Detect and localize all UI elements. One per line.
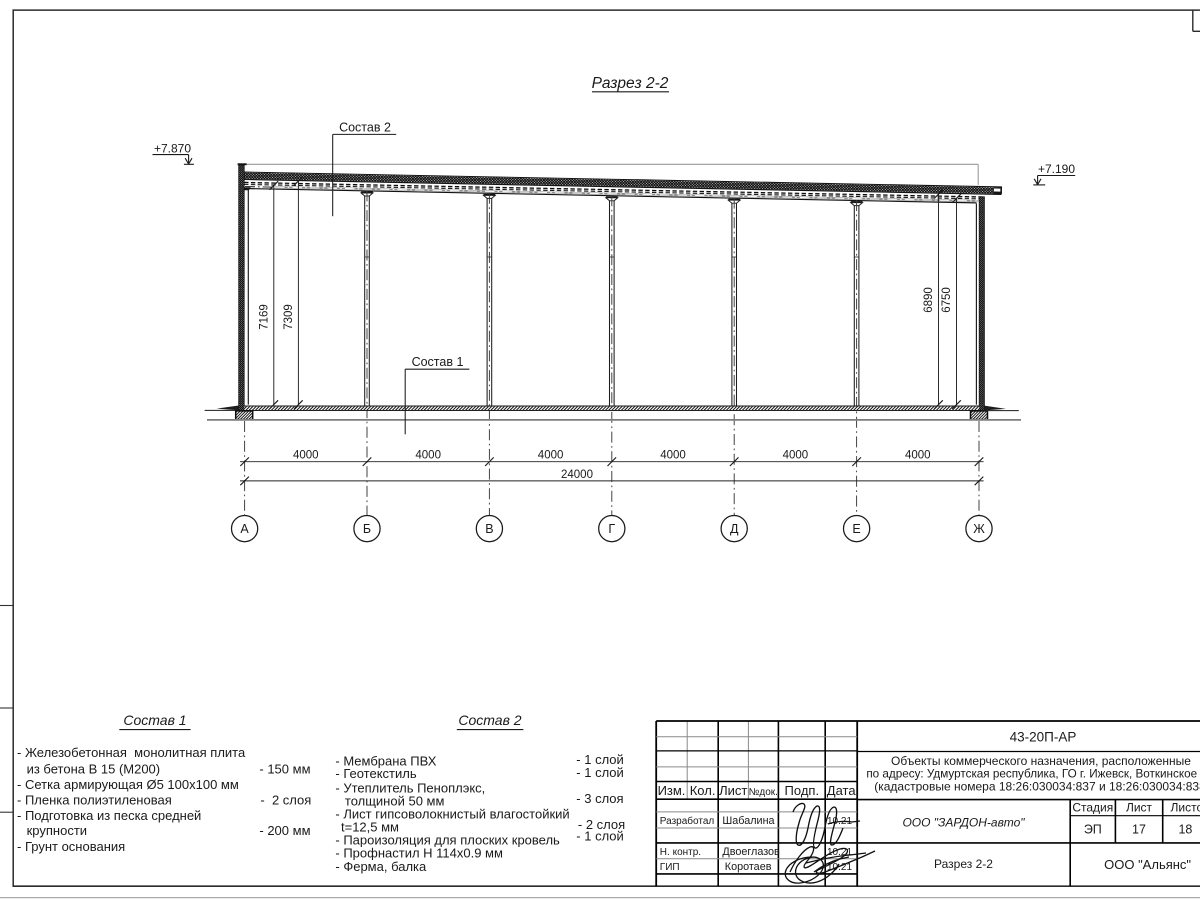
svg-text:- Грунт основания: - Грунт основания [17, 839, 125, 854]
svg-text:7169: 7169 [259, 304, 271, 330]
svg-text:- Сетка армирующая Ø5 100х100: - Сетка армирующая Ø5 100х100 мм [17, 777, 239, 792]
svg-text:Состав 2: Состав 2 [458, 712, 521, 728]
svg-text:4000: 4000 [538, 450, 564, 462]
svg-text:- Пленка полиэтиленовая: - Пленка полиэтиленовая [17, 792, 172, 807]
svg-text:- 1 слой: - 1 слой [576, 829, 624, 844]
svg-text:Коротаев: Коротаев [725, 861, 772, 873]
svg-text:Объекты коммерческого назначен: Объекты коммерческого назначения, распол… [891, 754, 1191, 768]
svg-text:Изм.: Изм. [658, 783, 686, 798]
svg-text:6750: 6750 [941, 287, 953, 313]
svg-text:В: В [485, 522, 493, 536]
svg-text:Состав 2: Состав 2 [339, 121, 391, 135]
svg-text:Шабалина: Шабалина [722, 815, 774, 827]
svg-text:Разрез 2-2: Разрез 2-2 [934, 857, 993, 871]
svg-text:4000: 4000 [660, 450, 686, 462]
svg-text:17: 17 [1132, 822, 1146, 836]
svg-text:24000: 24000 [561, 469, 593, 481]
svg-text:6890: 6890 [923, 287, 935, 313]
svg-text:- 200 мм: - 200 мм [259, 823, 310, 838]
svg-text:Разрез 2-2: Разрез 2-2 [592, 75, 669, 92]
svg-text:- 150 мм: - 150 мм [259, 762, 310, 777]
svg-text:- 1 слой: - 1 слой [576, 765, 624, 780]
svg-text:- 3 слоя: - 3 слоя [576, 791, 623, 806]
svg-text:Разработал: Разработал [660, 815, 715, 827]
svg-text:Е: Е [852, 522, 860, 536]
svg-text:4000: 4000 [905, 450, 931, 462]
svg-text:Б: Б [363, 522, 371, 536]
svg-text:- Геотекстиль: - Геотекстиль [335, 766, 416, 781]
svg-text:ГИП: ГИП [660, 862, 680, 873]
svg-text:Лист: Лист [719, 783, 747, 798]
svg-text:ООО "Альянс": ООО "Альянс" [1104, 857, 1191, 872]
svg-text:Д: Д [730, 522, 739, 536]
svg-text:7309: 7309 [283, 304, 295, 330]
svg-text:А: А [240, 522, 249, 536]
svg-text:Состав 1: Состав 1 [123, 712, 186, 728]
svg-text:+7.190: +7.190 [1038, 162, 1075, 176]
svg-text:Листов: Листов [1171, 801, 1200, 815]
svg-text:Кол.: Кол. [690, 783, 716, 798]
svg-text:Подп.: Подп. [785, 783, 820, 798]
svg-text:18: 18 [1178, 822, 1192, 836]
svg-text:4000: 4000 [293, 450, 319, 462]
svg-text:Ж: Ж [973, 522, 985, 536]
svg-text:- Ферма, балка: - Ферма, балка [335, 859, 427, 874]
svg-text:Состав 1: Состав 1 [412, 355, 464, 369]
svg-text:Н. контр.: Н. контр. [660, 847, 701, 858]
svg-text:- 2 слоя: - 2 слоя [260, 792, 311, 807]
svg-text:крупности: крупности [27, 823, 87, 838]
svg-text:Стадия: Стадия [1072, 801, 1113, 815]
svg-text:из бетона В 15 (М200): из бетона В 15 (М200) [27, 762, 161, 777]
svg-text:Двоеглазов: Двоеглазов [722, 846, 780, 858]
svg-text:Г: Г [608, 522, 615, 536]
svg-text:(кадастровые номера 18:26:0300: (кадастровые номера 18:26:030034:837 и 1… [874, 779, 1200, 793]
svg-text:43-20П-АР: 43-20П-АР [1010, 730, 1077, 745]
svg-text:+7.870: +7.870 [154, 141, 191, 155]
svg-text:Дата: Дата [827, 783, 857, 798]
svg-text:4000: 4000 [415, 450, 441, 462]
svg-text:ООО "ЗАРДОН-авто": ООО "ЗАРДОН-авто" [902, 815, 1025, 829]
svg-text:ЭП: ЭП [1084, 822, 1102, 836]
svg-text:Лист: Лист [1126, 801, 1153, 815]
svg-text:- Подготовка из песка средней: - Подготовка из песка средней [17, 808, 201, 823]
svg-text:- Железобетонная монолитная п: - Железобетонная монолитная плита [17, 745, 246, 760]
svg-text:4000: 4000 [783, 450, 809, 462]
svg-text:№док.: №док. [749, 787, 778, 798]
